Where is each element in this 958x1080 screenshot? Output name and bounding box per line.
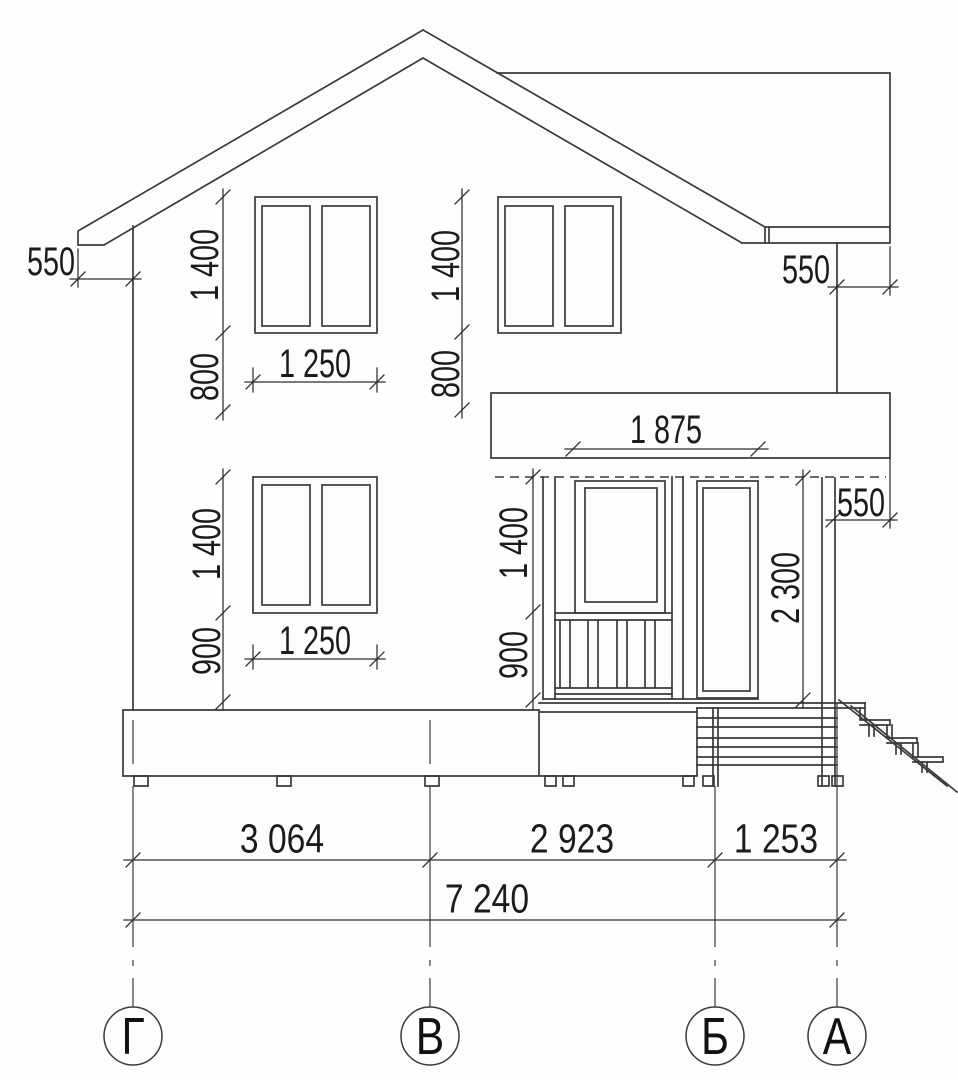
- roof-outline: [78, 30, 890, 245]
- dim-upper-right-window-sill: 800: [426, 350, 466, 398]
- upper-right-window: [498, 197, 621, 333]
- plinth: [123, 708, 697, 776]
- dim-lower-window-sill: 900: [187, 627, 227, 675]
- dim-upper-right-window-height: 1 400: [426, 230, 466, 302]
- porch-railing: [555, 613, 672, 694]
- porch-door: [697, 481, 758, 698]
- dim-span-b-a: 1 253: [734, 819, 818, 860]
- lower-left-window: [253, 477, 377, 613]
- dim-upper-left-window-height: 1 400: [185, 229, 225, 301]
- porch-floor: [539, 699, 865, 712]
- axis-bubble-label-b: Б: [701, 1011, 729, 1063]
- porch-window: [575, 481, 665, 613]
- dim-porch-clear-height: 2 300: [766, 552, 806, 624]
- porch-posts: [543, 477, 835, 786]
- axis-bubbles: [104, 1007, 866, 1065]
- dim-upper-left-window-width: 1 250: [279, 344, 351, 384]
- dim-span-total: 7 240: [445, 879, 529, 920]
- entry-stairs: [839, 700, 957, 792]
- dim-roof-overhang-left: 550: [27, 242, 75, 282]
- dim-porch-roof-overhang: 550: [837, 483, 885, 523]
- dim-span-v-b: 2 923: [530, 819, 614, 860]
- dim-porch-window-height: 1 400: [494, 507, 534, 579]
- foundation-piers: [134, 776, 843, 786]
- dim-porch-glazing-width: 1 875: [630, 410, 702, 450]
- wall-lines: [133, 226, 837, 710]
- dim-upper-left-window-sill: 800: [185, 353, 225, 401]
- upper-left-window: [255, 197, 377, 333]
- dim-porch-rail-height: 900: [494, 631, 534, 679]
- dim-lower-window-width: 1 250: [279, 621, 351, 661]
- deck-skirt-rails: [697, 708, 837, 786]
- axis-grid-lines: [133, 703, 837, 1007]
- dim-span-g-v: 3 064: [240, 819, 324, 860]
- axis-bubble-label-g: Г: [121, 1011, 144, 1063]
- axis-bubble-label-a: А: [823, 1011, 851, 1063]
- dim-roof-overhang-right: 550: [782, 250, 830, 290]
- axis-bubble-label-v: В: [416, 1011, 444, 1063]
- elevation-drawing: 550 550 550 1 250 1 250 1 875 1 400 800 …: [0, 0, 958, 1080]
- dim-lower-window-height: 1 400: [187, 508, 227, 580]
